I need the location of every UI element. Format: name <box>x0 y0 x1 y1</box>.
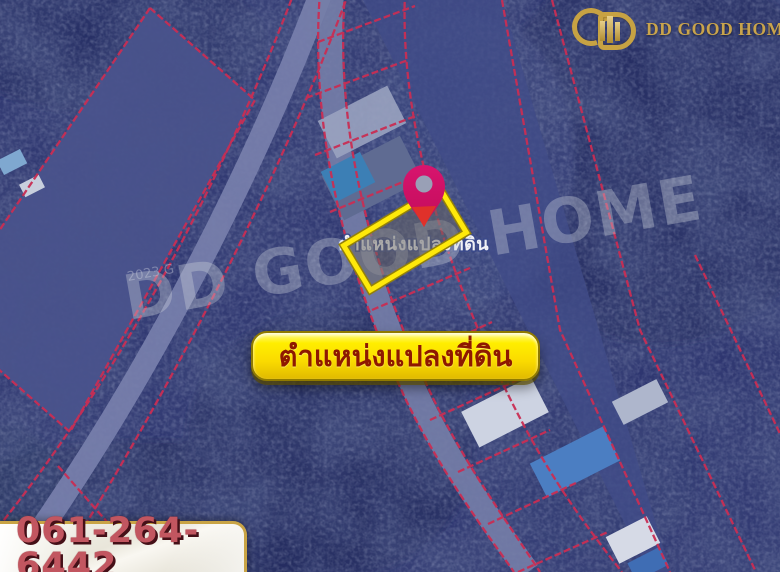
building-bar-icon <box>615 22 620 41</box>
listing-flyer: ตำแหน่งแปลงที่ดิน 2023 G DD GOOD HOME DD… <box>0 0 780 572</box>
building-bar-icon <box>607 16 613 43</box>
plot-location-button[interactable]: ตำแหน่งแปลงที่ดิน <box>251 331 540 381</box>
phone-number: 061-264-6442 <box>0 514 244 572</box>
plot-location-label: ตำแหน่งแปลงที่ดิน <box>279 342 513 371</box>
dd-monogram-icon <box>570 5 642 53</box>
phone-badge[interactable]: 061-264-6442 <box>0 521 247 572</box>
satellite-map: ตำแหน่งแปลงที่ดิน 2023 G DD GOOD HOME <box>0 0 780 572</box>
brand-name: DD GOOD HOME <box>646 19 780 40</box>
brand-logo: DD GOOD HOME <box>570 5 776 57</box>
building-bar-icon <box>600 21 605 41</box>
